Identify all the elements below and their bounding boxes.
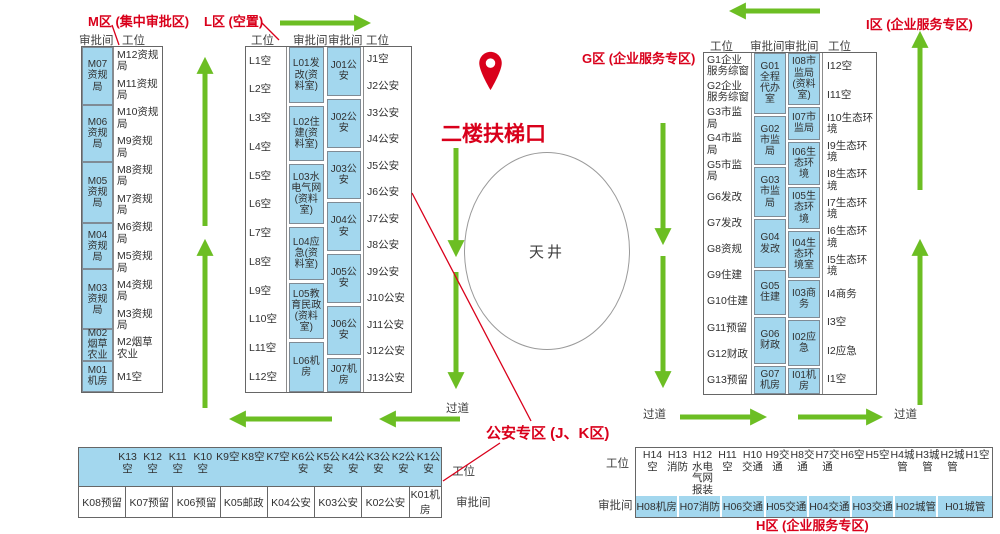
workstation-item: G10住建	[704, 289, 751, 315]
booth-cell: K02公安	[362, 487, 409, 517]
workstation-item: G12财政	[704, 342, 751, 368]
floor-plan-canvas: M区 (集中审批区) L区 (空置) I区 (企业服务专区) G区 (企业服务专…	[0, 0, 1000, 534]
zone-m-table: M07资规局M06资规局M05资规局M04资规局M03资规局M02烟草农业M01…	[81, 46, 163, 393]
aisle-label: 过道	[643, 406, 666, 422]
gi-booth-area: G01全程代办室G02市监局G03市监局G04发改G05住建G06财政G07机房…	[752, 53, 822, 394]
workstation-item: I7生态环境	[824, 195, 876, 223]
booth-cell: L01发改(资料室)	[289, 47, 324, 103]
booth-cell: G07机房	[754, 366, 786, 394]
workstation-item: J12公安	[364, 339, 411, 366]
workstation-item: I8生态环境	[824, 167, 876, 195]
workstation-item: L4空	[246, 133, 286, 162]
booth-cell: G06财政	[754, 317, 786, 365]
workstation-item: I5生态环境	[824, 252, 876, 280]
booth-cell: G04发改	[754, 219, 786, 269]
workstation-item: G13预留	[704, 368, 751, 394]
workstation-item: M5资规局	[114, 248, 162, 277]
workstation-item: G2企业服务综窗	[704, 79, 751, 105]
booth-cell: I03商务	[788, 280, 820, 318]
booth-cell: J01公安	[327, 47, 362, 96]
l-booth-column: L01发改(资料室)L02住建(资料室)L03水电气网(资料室)L04应急(资料…	[289, 47, 324, 392]
booth-cell: K08预留	[79, 487, 126, 517]
booth-cell: G03市监局	[754, 167, 786, 217]
booth-cell: G01全程代办室	[754, 53, 786, 114]
workstation-item: H7交通	[815, 450, 840, 496]
workstation-item: J8公安	[364, 233, 411, 260]
workstation-item: G6发改	[704, 184, 751, 210]
booth-cell: J04公安	[327, 202, 362, 251]
booth-cell: H07消防	[679, 496, 720, 517]
workstation-item: H9交通	[765, 450, 790, 496]
zone-label-l: L区 (空置)	[204, 11, 263, 30]
zone-label-m: M区 (集中审批区)	[88, 11, 189, 30]
workstation-item: M12资规局	[114, 47, 162, 76]
workstation-item: L3空	[246, 105, 286, 134]
workstation-item: H14空	[640, 450, 665, 496]
workstation-item: M1空	[114, 363, 162, 392]
workstation-item: L11空	[246, 335, 286, 364]
workstation-item: K2公安	[391, 448, 416, 486]
workstation-item: H12水电气网报装	[690, 450, 715, 496]
workstation-item: L10空	[246, 306, 286, 335]
workstation-item: J6公安	[364, 180, 411, 207]
workstation-item: L12空	[246, 363, 286, 392]
workstation-item: J2公安	[364, 74, 411, 101]
booth-cell: H06交通	[722, 496, 763, 517]
booth-cell: G02市监局	[754, 116, 786, 166]
booth-cell: H02城管	[895, 496, 936, 517]
header-booth: 审批间	[456, 494, 491, 510]
workstation-item: J4公安	[364, 127, 411, 154]
workstation-item: K10空	[190, 448, 215, 486]
workstation-item: G5市监局	[704, 158, 751, 184]
workstation-item: J13公安	[364, 365, 411, 392]
workstation-item: I9生态环境	[824, 138, 876, 166]
workstation-item: J10公安	[364, 286, 411, 313]
booth-cell: K01机房	[410, 487, 441, 517]
booth-cell: J03公安	[327, 151, 362, 200]
workstation-item: I2应急	[824, 337, 876, 365]
workstation-item: G9住建	[704, 263, 751, 289]
workstation-item: H8交通	[790, 450, 815, 496]
booth-cell: K03公安	[315, 487, 362, 517]
zone-gi-table: G1企业服务综窗G2企业服务综窗G3市监局G4市监局G5市监局G6发改G7发改G…	[703, 52, 877, 395]
booth-cell: K05邮政	[221, 487, 268, 517]
workstation-item: L6空	[246, 191, 286, 220]
map-pin-icon	[477, 50, 504, 92]
booth-cell: M01机房	[82, 361, 113, 392]
workstation-item: J11公安	[364, 312, 411, 339]
header-booth: 审批间	[598, 497, 633, 513]
workstation-item: H4城管	[890, 450, 915, 496]
h-booth-row: H08机房H07消防H06交通H05交通H04交通H03交通H02城管H01城管	[636, 496, 992, 517]
workstation-item: M6资规局	[114, 220, 162, 249]
workstation-item: I1空	[824, 366, 876, 394]
workstation-item: K8空	[240, 448, 265, 486]
workstation-item: I11空	[824, 81, 876, 109]
zone-h-table: H14空H13消防H12水电气网报装H11空H10交通H9交通H8交通H7交通H…	[635, 447, 993, 518]
workstation-item: K9空	[215, 448, 240, 486]
m-workstation-column: M12资规局M11资规局M10资规局M9资规局M8资规局M7资规局M6资规局M5…	[113, 47, 162, 392]
workstation-item: L7空	[246, 220, 286, 249]
atrium-label: 天井	[529, 241, 565, 262]
workstation-item: H11空	[715, 450, 740, 496]
workstation-item: H13消防	[665, 450, 690, 496]
workstation-item: I6生态环境	[824, 224, 876, 252]
booth-cell: L06机房	[289, 342, 324, 392]
booth-cell: H05交通	[766, 496, 807, 517]
aisle-label: 过道	[894, 406, 917, 422]
zone-k-table: K13空K12空K11空K10空K9空K8空K7空K6公安K5公安K4公安K3公…	[78, 447, 442, 518]
workstation-item: G11预留	[704, 315, 751, 341]
g-workstation-column: G1企业服务综窗G2企业服务综窗G3市监局G4市监局G5市监局G6发改G7发改G…	[704, 53, 752, 394]
workstation-item: G7发改	[704, 210, 751, 236]
workstation-item: H10交通	[740, 450, 765, 496]
workstation-item: L5空	[246, 162, 286, 191]
workstation-item: J5公安	[364, 153, 411, 180]
booth-cell: J06公安	[327, 306, 362, 355]
booth-cell: K07预留	[126, 487, 173, 517]
workstation-item: M8资规局	[114, 162, 162, 191]
workstation-item: M9资规局	[114, 133, 162, 162]
booth-cell: G05住建	[754, 270, 786, 314]
booth-cell: J02公安	[327, 99, 362, 148]
workstation-item: K3公安	[366, 448, 391, 486]
booth-cell: I08市监局(资料室)	[788, 53, 820, 105]
workstation-item: K7空	[265, 448, 290, 486]
workstation-item: H2城管	[940, 450, 965, 496]
workstation-item: J7公安	[364, 206, 411, 233]
workstation-item: K11空	[165, 448, 190, 486]
booth-cell: H01城管	[938, 496, 992, 517]
workstation-item: H6空	[840, 450, 865, 496]
g-booth-column: G01全程代办室G02市监局G03市监局G04发改G05住建G06财政G07机房	[754, 53, 786, 394]
k-workstation-row: K13空K12空K11空K10空K9空K8空K7空K6公安K5公安K4公安K3公…	[79, 448, 441, 486]
workstation-item: M7资规局	[114, 191, 162, 220]
i-booth-column: I08市监局(资料室)I07市监局I06生态环境I05生态环境I04生态环境室I…	[788, 53, 820, 394]
aisle-label: 过道	[446, 400, 469, 416]
booth-cell: I07市监局	[788, 107, 820, 141]
j-workstation-column: J1空J2公安J3公安J4公安J5公安J6公安J7公安J8公安J9公安J10公安…	[363, 47, 411, 392]
booth-cell: I02应急	[788, 320, 820, 365]
workstation-item: G8资规	[704, 237, 751, 263]
workstation-item: I4商务	[824, 280, 876, 308]
booth-cell: M07资规局	[82, 47, 113, 105]
k-booth-row: K08预留K07预留K06预留K05邮政K04公安K03公安K02公安K01机房	[79, 486, 441, 517]
booth-cell: J07机房	[327, 358, 362, 392]
workstation-item: M3资规局	[114, 306, 162, 335]
zone-label-i: I区 (企业服务专区)	[866, 14, 973, 33]
booth-cell: H08机房	[636, 496, 677, 517]
l-workstation-column: L1空L2空L3空L4空L5空L6空L7空L8空L9空L10空L11空L12空	[246, 47, 287, 392]
workstation-item: H1空	[965, 450, 990, 496]
workstation-item: K6公安	[291, 448, 316, 486]
workstation-item: G1企业服务综窗	[704, 53, 751, 79]
h-workstation-row: H14空H13消防H12水电气网报装H11空H10交通H9交通H8交通H7交通H…	[636, 448, 992, 496]
booth-cell: M03资规局	[82, 269, 113, 329]
workstation-item: L9空	[246, 277, 286, 306]
workstation-item: I3空	[824, 309, 876, 337]
booth-cell: L02住建(资料室)	[289, 106, 324, 160]
atrium-ellipse: 天井	[464, 152, 630, 350]
workstation-item: I10生态环境	[824, 110, 876, 138]
workstation-item: M10资规局	[114, 105, 162, 134]
zone-lj-table: L1空L2空L3空L4空L5空L6空L7空L8空L9空L10空L11空L12空 …	[245, 46, 412, 393]
workstation-item: L1空	[246, 47, 286, 76]
booth-cell: L05教育民政(资料室)	[289, 283, 324, 339]
workstation-item: K1公安	[416, 448, 441, 486]
workstation-item: G3市监局	[704, 105, 751, 131]
workstation-item: L2空	[246, 76, 286, 105]
workstation-item: M4资规局	[114, 277, 162, 306]
booth-cell: M05资规局	[82, 162, 113, 224]
workstation-item: K5公安	[316, 448, 341, 486]
booth-cell: I06生态环境	[788, 142, 820, 185]
booth-cell: K06预留	[173, 487, 220, 517]
booth-cell: J05公安	[327, 254, 362, 303]
workstation-item: M2烟草农业	[114, 335, 162, 364]
booth-cell: H04交通	[809, 496, 850, 517]
zone-label-jk: 公安专区 (J、K区)	[486, 422, 609, 443]
booth-cell: L03水电气网(资料室)	[289, 164, 324, 225]
escalator-entrance-label: 二楼扶梯口	[441, 118, 546, 148]
zone-label-g: G区 (企业服务专区)	[582, 48, 695, 67]
workstation-item: G4市监局	[704, 132, 751, 158]
lj-booth-area: L01发改(资料室)L02住建(资料室)L03水电气网(资料室)L04应急(资料…	[287, 47, 363, 392]
m-booth-column: M07资规局M06资规局M05资规局M04资规局M03资规局M02烟草农业M01…	[82, 47, 113, 392]
booth-cell: M04资规局	[82, 223, 113, 269]
workstation-item: K4公安	[341, 448, 366, 486]
j-booth-column: J01公安J02公安J03公安J04公安J05公安J06公安J07机房	[327, 47, 362, 392]
workstation-item: M11资规局	[114, 76, 162, 105]
booth-cell: M06资规局	[82, 105, 113, 162]
workstation-item: H3城管	[915, 450, 940, 496]
booth-cell: K04公安	[268, 487, 315, 517]
booth-cell: I04生态环境室	[788, 231, 820, 278]
workstation-item: L8空	[246, 248, 286, 277]
i-workstation-column: I12空I11空I10生态环境I9生态环境I8生态环境I7生态环境I6生态环境I…	[822, 53, 876, 394]
workstation-item: K13空	[115, 448, 140, 486]
workstation-item: J1空	[364, 47, 411, 74]
workstation-item: I12空	[824, 53, 876, 81]
workstation-item: H5空	[865, 450, 890, 496]
booth-cell: H03交通	[852, 496, 893, 517]
workstation-item: J3公安	[364, 100, 411, 127]
workstation-item: J9公安	[364, 259, 411, 286]
booth-cell: L04应急(资料室)	[289, 227, 324, 280]
workstation-item: K12空	[140, 448, 165, 486]
header-workstation: 工位	[452, 463, 475, 479]
booth-cell: I01机房	[788, 368, 820, 394]
booth-cell: M02烟草农业	[82, 329, 113, 360]
booth-cell: I05生态环境	[788, 187, 820, 230]
header-workstation: 工位	[606, 455, 629, 471]
